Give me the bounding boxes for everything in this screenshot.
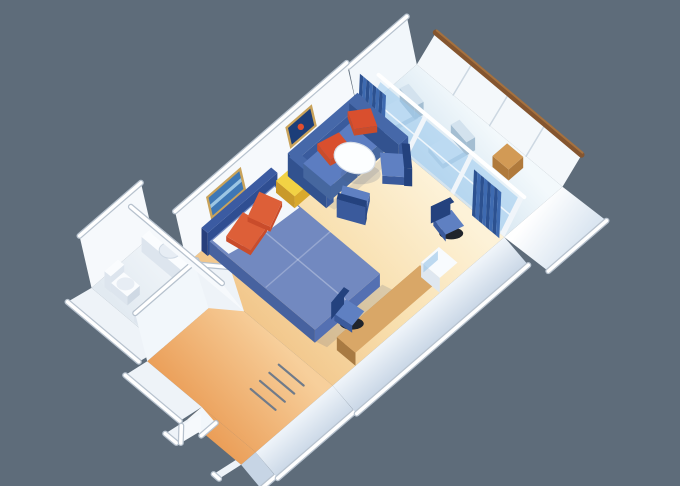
toilet-seat bbox=[116, 277, 134, 290]
stateroom-3d-render bbox=[0, 0, 680, 486]
stateroom-floorplan-image bbox=[0, 0, 680, 486]
wall-cap bbox=[181, 426, 182, 443]
chair-back-side bbox=[404, 168, 412, 187]
art-fish-figure bbox=[298, 124, 304, 130]
